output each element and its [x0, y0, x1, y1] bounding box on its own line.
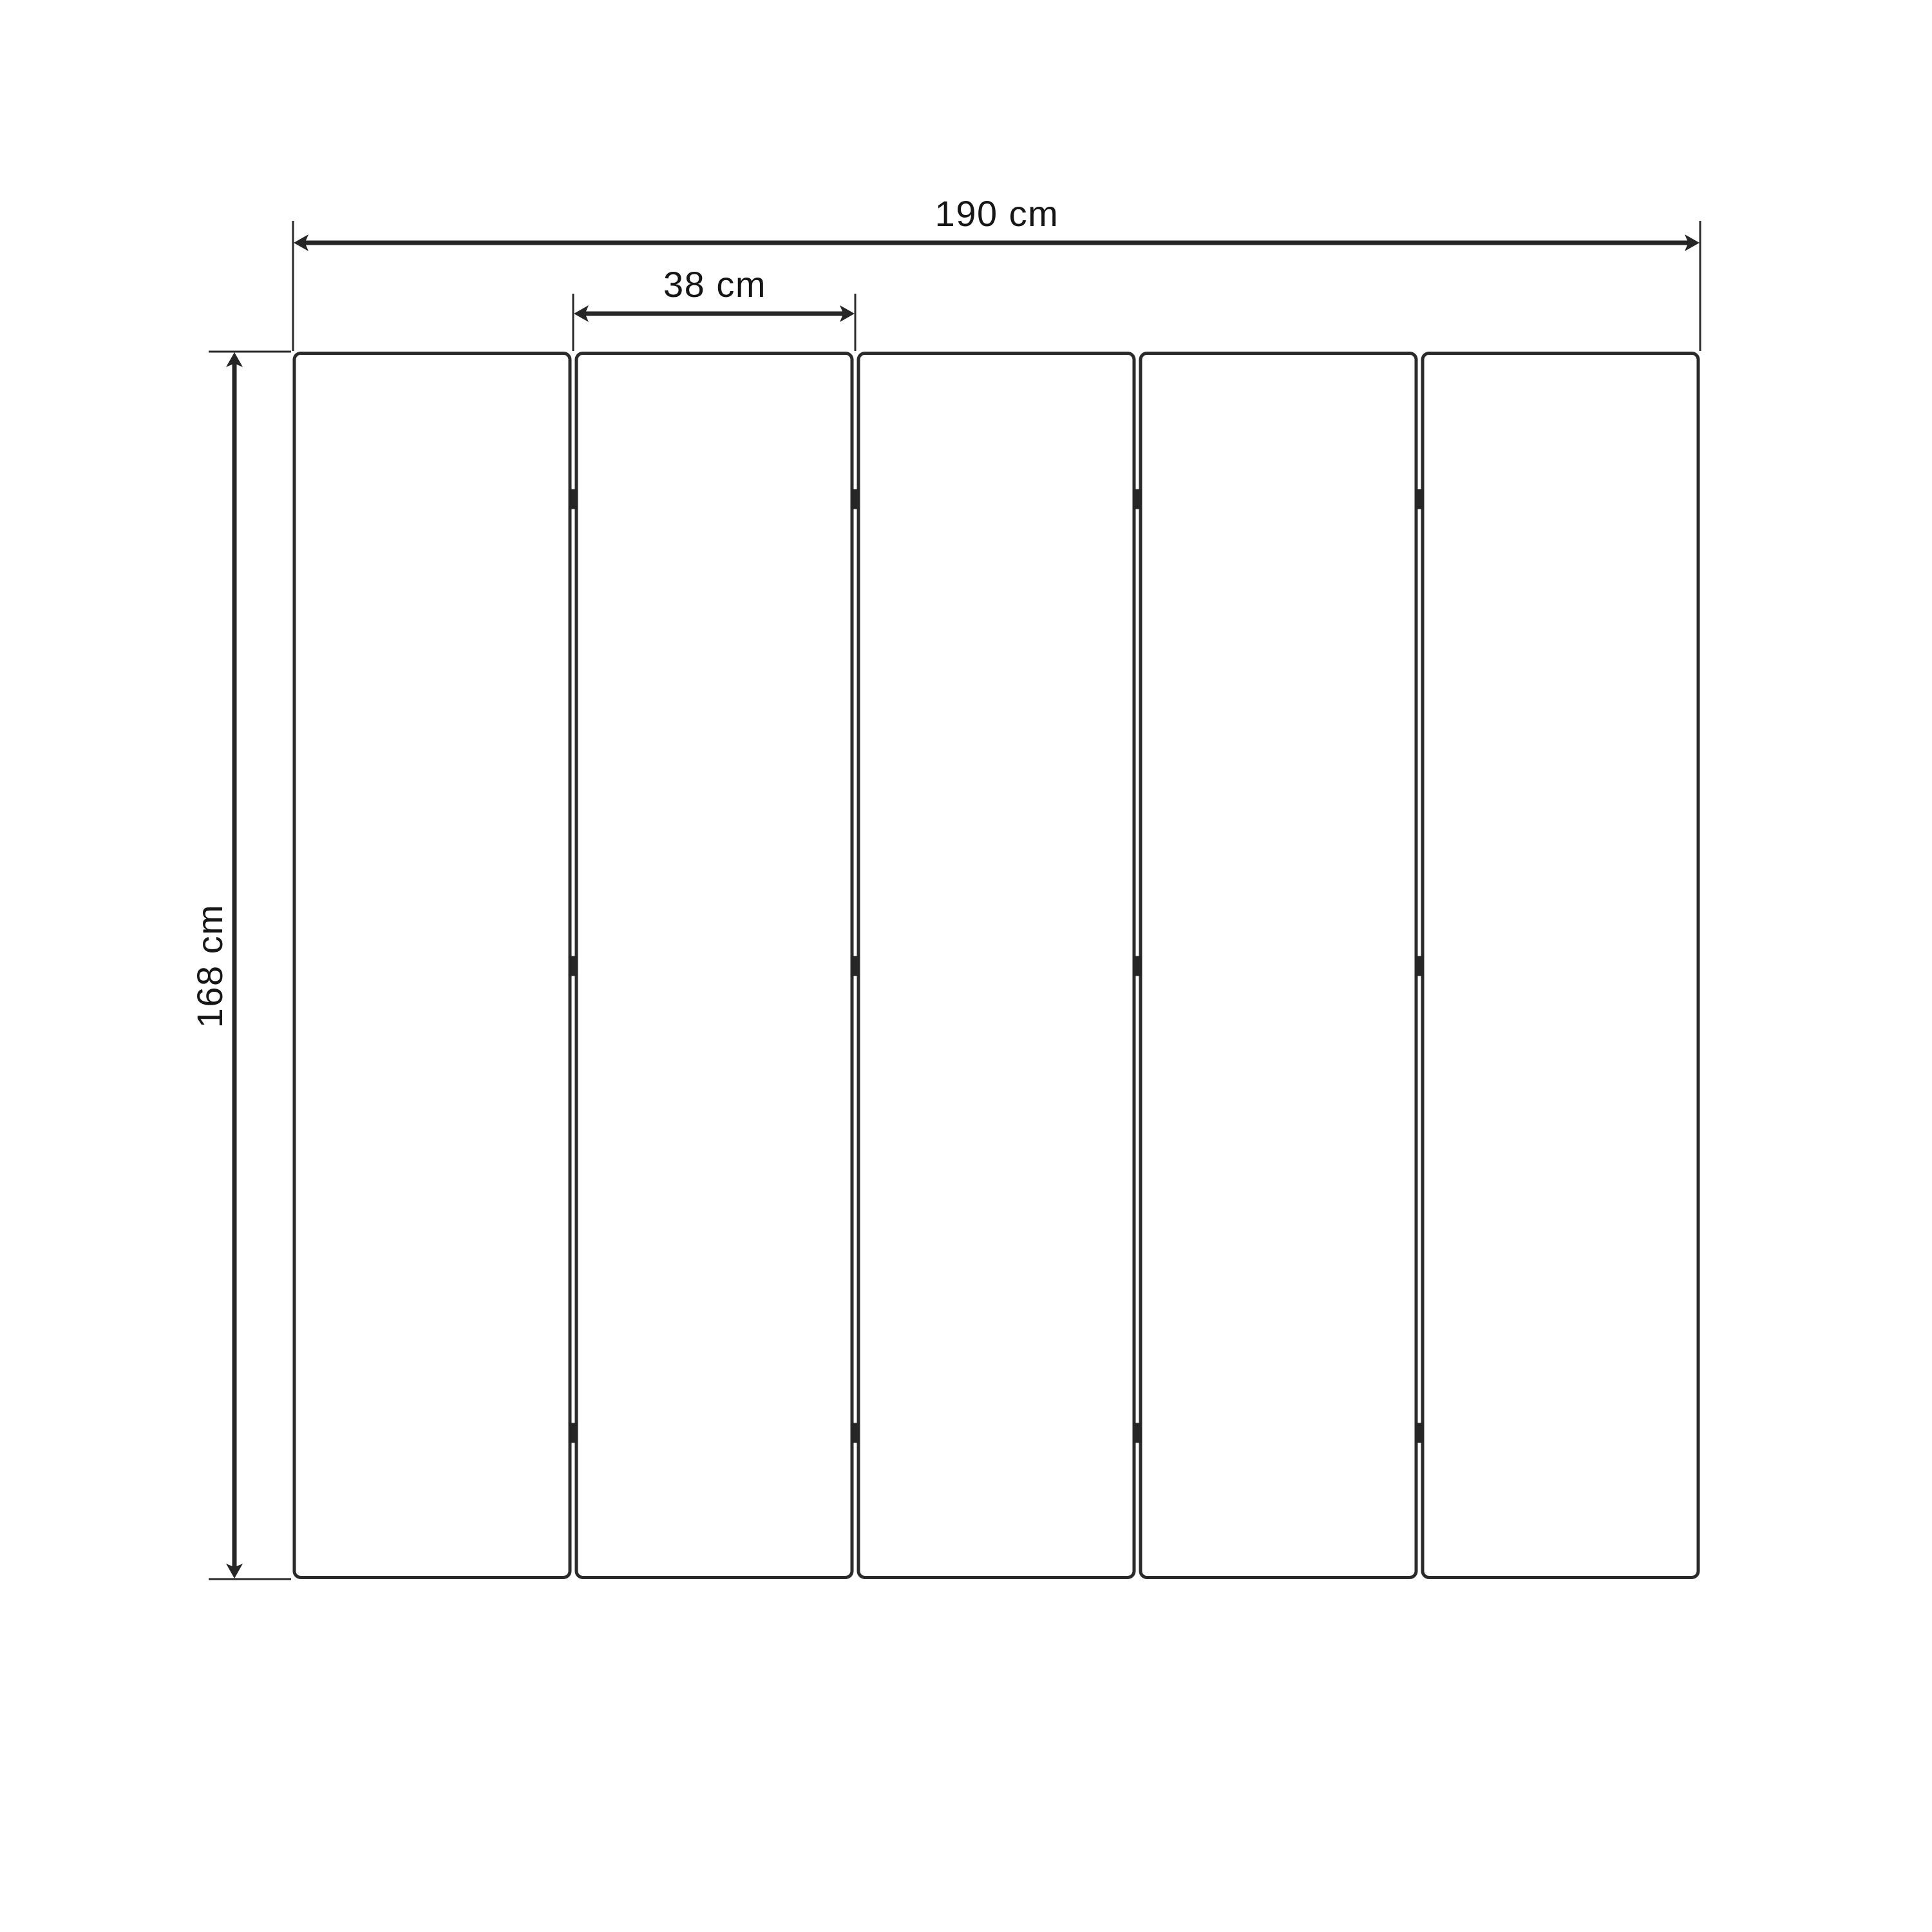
panel-2	[576, 354, 852, 1578]
dim-panel-width: 38 cm	[573, 264, 855, 351]
panels-group	[294, 354, 1698, 1578]
panel-5	[1423, 354, 1698, 1578]
panel-width-label: 38 cm	[663, 264, 766, 305]
dimension-drawing: 190 cm 38 cm 168 cm	[0, 0, 1932, 1932]
hinge-mark	[1416, 489, 1424, 509]
hinge-mark	[851, 956, 860, 976]
hinge-mark	[569, 489, 578, 509]
hinge-mark	[851, 1423, 860, 1443]
height-label: 168 cm	[189, 904, 230, 1028]
dim-total-width: 190 cm	[293, 193, 1700, 351]
hinge-mark	[569, 1423, 578, 1443]
hinge-mark	[1133, 956, 1142, 976]
hinge-mark	[1416, 956, 1424, 976]
panel-1	[294, 354, 570, 1578]
hinge-mark	[1133, 489, 1142, 509]
hinge-mark	[1133, 1423, 1142, 1443]
folding-screen-diagram: 190 cm 38 cm 168 cm	[0, 0, 1932, 1932]
panel-4	[1141, 354, 1416, 1578]
panel-3	[858, 354, 1134, 1578]
total-width-label: 190 cm	[935, 193, 1059, 234]
hinge-mark	[851, 489, 860, 509]
hinge-mark	[569, 956, 578, 976]
dim-height: 168 cm	[189, 352, 291, 1579]
hinge-mark	[1416, 1423, 1424, 1443]
